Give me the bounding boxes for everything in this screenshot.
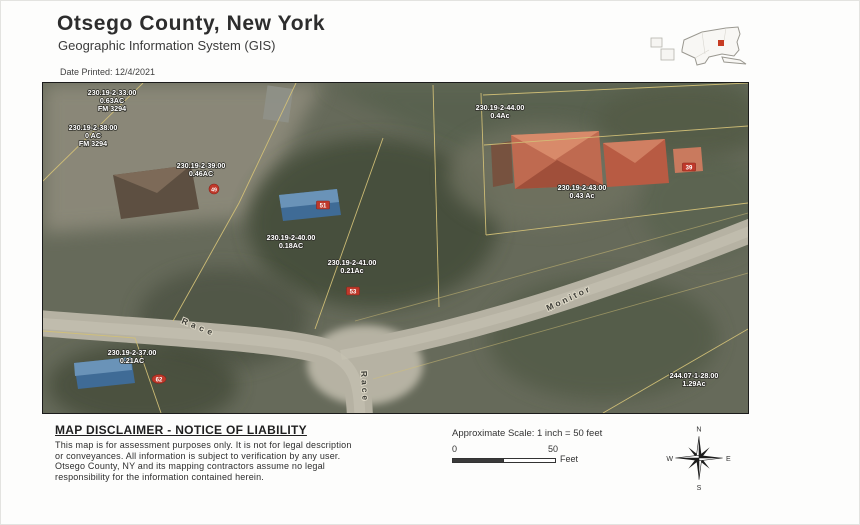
parcel-area: 0.4Ac [490, 111, 509, 120]
disclaimer-body: This map is for assessment purposes only… [55, 440, 415, 482]
scale-bar-segment-filled [452, 458, 504, 463]
scale-label: Approximate Scale: 1 inch = 50 feet [452, 428, 632, 439]
parcel-area: 0.18AC [279, 241, 303, 250]
highlighted-county-otsego [718, 40, 724, 46]
compass-south-label: S [697, 484, 702, 492]
parcel-area: 0.46AC [189, 169, 213, 178]
parcel-fm: FM 3294 [79, 139, 107, 148]
disclaimer-line: or conveyances. All information is subje… [55, 451, 415, 462]
compass-north-label: N [696, 426, 701, 434]
address-marker: 53 [347, 287, 360, 295]
long-island-outline [722, 57, 746, 64]
disclaimer-line: responsibility for the information conta… [55, 472, 415, 483]
map-viewport: 230.19-2-33.00 0.63AC FM 3294 230.19-2-3… [42, 82, 749, 414]
page-subtitle: Geographic Information System (GIS) [58, 38, 275, 53]
compass-rose: N S W E [664, 422, 734, 494]
disclaimer-line: Otsego County, NY and its mapping contra… [55, 461, 415, 472]
address-number: 49 [211, 187, 217, 193]
address-number: 53 [350, 289, 357, 295]
locator-detail-box [651, 38, 662, 47]
scale-bar-segment-outline [504, 458, 556, 463]
address-number: 62 [156, 377, 163, 383]
disclaimer-title: MAP DISCLAIMER - NOTICE OF LIABILITY [55, 423, 415, 437]
address-marker: 49 [209, 184, 219, 194]
disclaimer-line: This map is for assessment purposes only… [55, 440, 415, 451]
address-marker: 62 [152, 375, 166, 384]
gis-print-page: Otsego County, New York Geographic Infor… [0, 0, 860, 525]
parcel-area: 0.21Ac [340, 266, 363, 275]
locator-detail-box [661, 49, 674, 60]
compass-west-label: W [666, 455, 673, 463]
scale-end-label: 50 [548, 444, 558, 454]
parcel-fm: FM 3294 [98, 104, 126, 113]
ny-state-locator-map [648, 18, 750, 80]
address-marker: 39 [683, 163, 696, 171]
date-printed-label: Date Printed: 12/4/2021 [60, 67, 155, 77]
compass-east-label: E [726, 455, 731, 463]
scale-unit-label: Feet [560, 455, 578, 463]
street-label-race-south: Race [359, 371, 371, 404]
compass-star-icon [675, 436, 722, 480]
address-marker: 51 [317, 201, 330, 209]
ny-state-outline [682, 27, 746, 65]
address-number: 39 [686, 165, 693, 171]
building-gray-shed [263, 85, 293, 122]
address-number: 51 [320, 203, 327, 209]
parcel-area: 0.43 Ac [570, 191, 595, 200]
parcel-area: 1.29Ac [682, 379, 705, 388]
aerial-map-canvas: 230.19-2-33.00 0.63AC FM 3294 230.19-2-3… [43, 83, 748, 413]
map-disclaimer: MAP DISCLAIMER - NOTICE OF LIABILITY Thi… [55, 423, 415, 482]
scale-start-label: 0 [452, 444, 457, 454]
scale-bar: Feet [452, 455, 632, 463]
scale-block: Approximate Scale: 1 inch = 50 feet 0 50… [452, 428, 632, 463]
parcel-area: 0.21AC [120, 356, 144, 365]
page-title: Otsego County, New York [57, 12, 325, 36]
